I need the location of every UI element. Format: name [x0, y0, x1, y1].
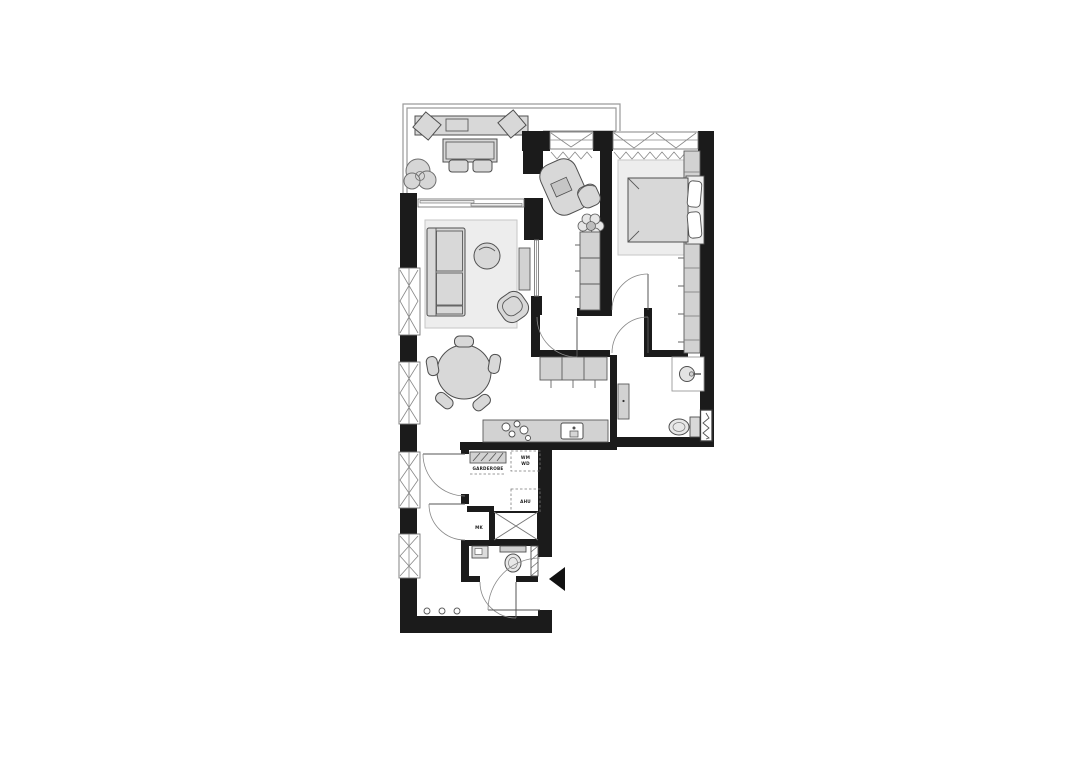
- entrance-arrow-icon: [549, 567, 565, 591]
- console-table: [519, 248, 530, 290]
- kitchen: [483, 357, 629, 442]
- balcony-plant: [404, 159, 436, 189]
- wc-radiator: [531, 546, 538, 576]
- label-dryer: WD: [521, 461, 530, 466]
- wc-toilet: [500, 546, 526, 572]
- dining-chair-w: [425, 356, 439, 377]
- window-2: [399, 362, 420, 424]
- kitchen-tall-cabinets: [540, 357, 607, 388]
- shaft: [494, 512, 538, 540]
- balcony-chair-2: [473, 160, 492, 172]
- window-3: [399, 452, 420, 508]
- utility-shelf: [470, 452, 506, 463]
- balcony-slider[interactable]: [418, 199, 524, 207]
- bedroom: [618, 151, 704, 353]
- dining-area: [425, 336, 501, 413]
- label-meter: MK: [475, 525, 483, 530]
- tall-unit-handle: [622, 400, 624, 402]
- toilet: [669, 417, 700, 437]
- top-windows: [550, 132, 698, 159]
- glass-partition: [535, 240, 539, 296]
- sofa: [427, 228, 465, 316]
- bed: [628, 176, 704, 244]
- dining-chair-e: [487, 354, 501, 375]
- study: [536, 155, 604, 310]
- study-curtain: [551, 152, 592, 159]
- label-wardrobe: GARDEROBE: [473, 466, 504, 471]
- bedroom-door[interactable]: [612, 274, 648, 310]
- radiator: [701, 410, 713, 441]
- dining-chair-n: [455, 336, 474, 347]
- floor-plan-page: GARDEROBE WM WD AHU MK: [0, 0, 1092, 772]
- entry-floor-markers: [424, 608, 460, 614]
- study-shelf: [575, 232, 600, 310]
- dining-table: [437, 345, 491, 399]
- pillow-1: [687, 181, 702, 208]
- label-ahu: AHU: [520, 499, 531, 504]
- entry: [424, 567, 565, 614]
- closet-door-upper[interactable]: [423, 454, 465, 496]
- pillow-2: [687, 211, 702, 238]
- window-4: [399, 534, 420, 578]
- wc-basin: [472, 546, 488, 558]
- sink-icon: [561, 423, 583, 439]
- ahu-box: AHU: [511, 489, 540, 513]
- living-room: [425, 220, 532, 328]
- wc-door[interactable]: [480, 582, 516, 618]
- washer-dryer-box: WM WD: [511, 451, 540, 471]
- bathroom-door[interactable]: [612, 317, 648, 353]
- balcony-chair-1: [449, 160, 468, 172]
- study-window: [550, 132, 593, 159]
- floor-plan-svg: GARDEROBE WM WD AHU MK: [0, 0, 1092, 772]
- kitchen-counter: [483, 420, 608, 442]
- washbasin: [672, 357, 704, 391]
- closet-door-lower[interactable]: [429, 504, 465, 540]
- label-washer: WM: [521, 455, 530, 460]
- window-1: [399, 268, 420, 335]
